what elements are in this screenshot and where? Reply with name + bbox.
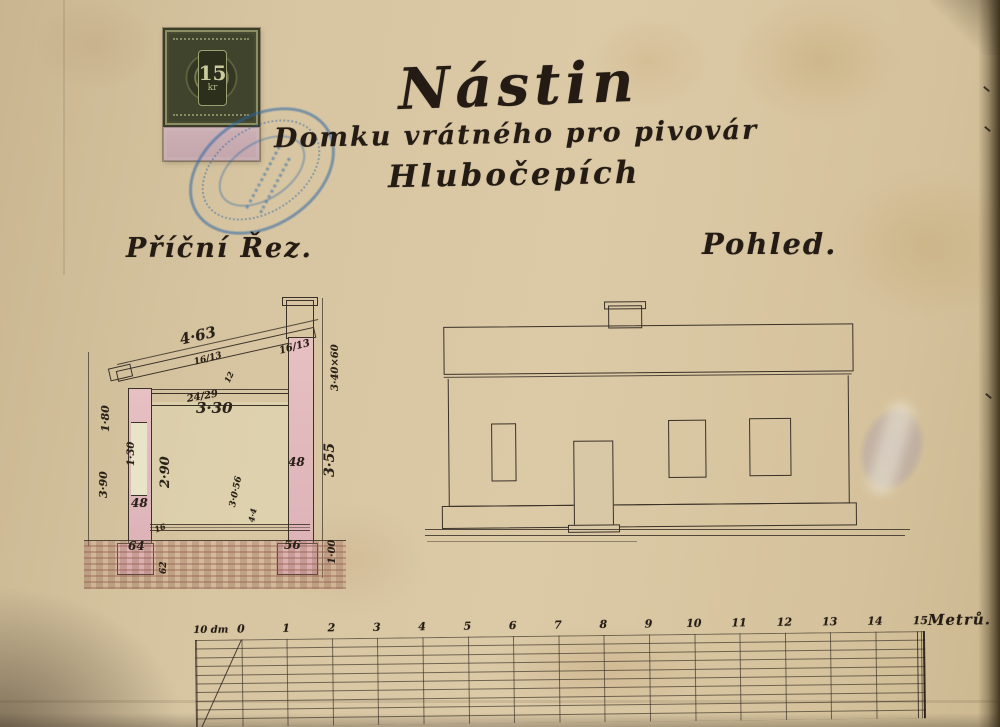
elevation-label: Pohled. — [702, 227, 837, 261]
dimension-label: 48 — [131, 496, 148, 510]
dimension-label: 12 — [222, 370, 236, 384]
scale-number: 6 — [503, 619, 523, 632]
page-subtitle-place: Hlubočepích — [388, 155, 641, 195]
scale-diagonal-line — [201, 639, 242, 727]
elevation-window — [491, 423, 517, 481]
floor-line — [150, 527, 310, 528]
elevation-plinth — [442, 502, 857, 529]
scale-number: 9 — [638, 617, 658, 630]
dimension-line — [322, 298, 323, 578]
floor-line — [150, 524, 310, 525]
scale-number: 10 — [684, 617, 704, 630]
cross-section-label: Příční Řez. — [126, 233, 313, 264]
page-subtitle: Domku vrátného pro pivovár — [274, 115, 759, 154]
dimension-line — [88, 352, 89, 546]
elevation-chimney-cap — [604, 301, 646, 309]
stamp-unit: kr — [208, 83, 218, 93]
dimension-label: 3·40×60 — [330, 344, 341, 391]
dimension-label: 2·90 — [158, 456, 173, 488]
elevation-window — [668, 420, 707, 478]
dimension-label: 56 — [284, 538, 301, 552]
scale-number: 2 — [321, 621, 341, 634]
section-right-wall — [288, 337, 314, 545]
page-title: Nástin — [397, 48, 640, 123]
dimension-label: 3·55 — [322, 443, 338, 477]
dimension-label: 64 — [128, 539, 145, 553]
paper-corner-shadow — [930, 0, 1000, 55]
dimension-label: 3·90 — [97, 471, 110, 498]
dimension-label: 3·30 — [196, 399, 233, 417]
dimension-label: 1·80 — [99, 405, 112, 432]
ground-line — [425, 529, 910, 530]
stamp-bottom-inscription — [173, 114, 249, 116]
ground-line — [425, 535, 905, 536]
elevation-window — [749, 418, 792, 476]
section-chimney-cap — [282, 297, 318, 306]
elevation-drawing — [435, 296, 917, 545]
scale-unit-label: Metrů. — [928, 610, 991, 629]
diagonal-scale-bar: 0123456789101112131415 10 dm Metrů. — [195, 631, 923, 727]
dimension-label: 62 — [159, 561, 169, 574]
scale-number: 3 — [367, 621, 387, 634]
floor-line — [150, 530, 310, 531]
scale-number: 12 — [774, 616, 794, 629]
scanned-drawing-sheet: 15 kr Nástin Domku vrátného pro pivovár … — [0, 0, 1000, 727]
scale-number: 13 — [820, 615, 840, 628]
roof-fascia — [443, 323, 853, 375]
scale-number: 1 — [276, 622, 296, 635]
dimension-label: 4·63 — [178, 323, 218, 349]
scale-end-line — [917, 631, 919, 718]
scale-number: 7 — [548, 618, 568, 631]
stamp-value: 15 — [199, 63, 227, 83]
dimension-label: 1·00 — [327, 540, 338, 564]
stamp-value-shield: 15 kr — [198, 50, 227, 106]
scale-number: 0 — [231, 622, 251, 635]
dimension-label: 1·30 — [126, 442, 137, 466]
stamp-top-inscription — [173, 38, 249, 40]
scale-number: 14 — [865, 615, 885, 628]
scale-number: 11 — [729, 616, 749, 629]
ground-line — [427, 541, 637, 542]
scale-left-label: 10 dm — [189, 625, 233, 637]
vertical-crease — [63, 0, 65, 275]
scale-number: 4 — [412, 620, 432, 633]
scale-number: 5 — [457, 620, 477, 633]
revenue-stamp-engraving: 15 kr — [163, 28, 260, 127]
ceiling-line — [138, 389, 308, 390]
scale-grid — [195, 631, 926, 727]
elevation-door — [573, 440, 614, 526]
scale-number: 8 — [593, 618, 613, 631]
dimension-label: 48 — [288, 455, 305, 469]
ground-hatching — [84, 541, 346, 589]
